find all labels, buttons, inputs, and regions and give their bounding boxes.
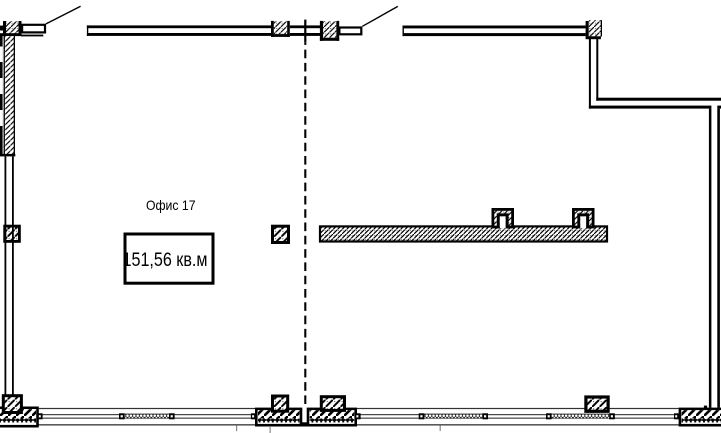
svg-text:Офис 17: Офис 17 [146,198,196,213]
svg-text:151,56 кв.м: 151,56 кв.м [123,250,208,271]
